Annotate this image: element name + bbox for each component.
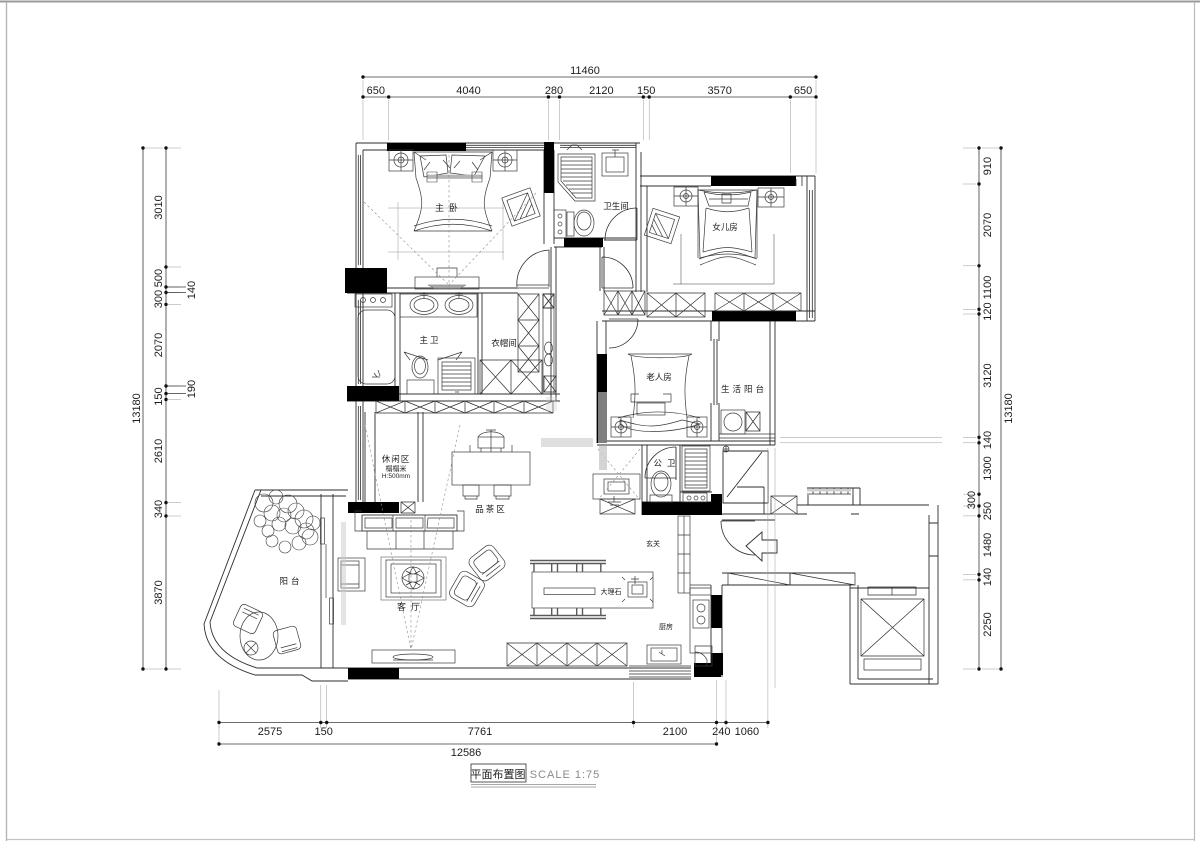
svg-text:140: 140: [982, 431, 994, 449]
svg-text:H:500mm: H:500mm: [382, 473, 410, 480]
svg-text:300: 300: [153, 290, 165, 308]
svg-text:240: 240: [712, 726, 730, 738]
svg-text:品茶区: 品茶区: [475, 504, 507, 514]
svg-text:玄关: 玄关: [646, 539, 660, 548]
svg-text:SCALE 1:75: SCALE 1:75: [530, 769, 601, 781]
svg-text:250: 250: [982, 502, 994, 520]
svg-text:大理石: 大理石: [601, 587, 622, 596]
svg-text:910: 910: [982, 157, 994, 175]
svg-text:阳台: 阳台: [279, 576, 302, 586]
svg-text:衣帽间: 衣帽间: [491, 338, 517, 348]
svg-text:3120: 3120: [982, 363, 994, 387]
svg-text:300: 300: [966, 491, 978, 509]
svg-text:11460: 11460: [570, 65, 600, 77]
svg-text:生活阳台: 生活阳台: [721, 384, 767, 394]
svg-text:厨房: 厨房: [659, 622, 673, 631]
svg-text:650: 650: [367, 85, 385, 97]
svg-text:12586: 12586: [451, 747, 482, 759]
svg-text:500: 500: [153, 269, 165, 287]
svg-text:280: 280: [545, 85, 563, 97]
svg-text:4040: 4040: [456, 85, 480, 97]
svg-text:1060: 1060: [735, 726, 759, 738]
svg-text:老人房: 老人房: [646, 372, 672, 382]
svg-text:休闲区: 休闲区: [382, 454, 411, 464]
svg-text:140: 140: [186, 281, 198, 299]
svg-text:2120: 2120: [589, 85, 613, 97]
svg-text:7761: 7761: [468, 726, 492, 738]
svg-text:女儿房: 女儿房: [712, 222, 738, 232]
svg-text:3570: 3570: [707, 85, 731, 97]
svg-text:1100: 1100: [982, 276, 994, 300]
svg-text:公卫: 公卫: [653, 458, 680, 468]
svg-text:卫生间: 卫生间: [603, 201, 629, 211]
svg-text:150: 150: [315, 726, 333, 738]
svg-text:13180: 13180: [1003, 393, 1015, 424]
svg-text:2575: 2575: [258, 726, 282, 738]
svg-text:3010: 3010: [153, 195, 165, 219]
svg-text:2070: 2070: [153, 333, 165, 357]
svg-text:主卧: 主卧: [435, 202, 463, 213]
svg-text:1300: 1300: [982, 456, 994, 480]
svg-text:190: 190: [186, 380, 198, 398]
svg-text:主卫: 主卫: [419, 335, 440, 345]
svg-text:120: 120: [982, 302, 994, 320]
svg-text:2250: 2250: [982, 612, 994, 636]
svg-text:150: 150: [153, 387, 165, 405]
svg-text:1480: 1480: [982, 533, 994, 557]
svg-text:平面布置图: 平面布置图: [471, 768, 526, 781]
svg-text:3870: 3870: [153, 580, 165, 604]
svg-text:150: 150: [637, 85, 655, 97]
svg-text:13180: 13180: [131, 393, 143, 424]
svg-text:140: 140: [982, 568, 994, 586]
svg-text:2100: 2100: [663, 726, 687, 738]
svg-text:340: 340: [153, 500, 165, 518]
svg-text:2070: 2070: [982, 213, 994, 237]
svg-text:客厅: 客厅: [397, 601, 425, 612]
svg-text:榻榻米: 榻榻米: [386, 464, 407, 473]
svg-text:650: 650: [794, 85, 812, 97]
svg-text:2610: 2610: [153, 439, 165, 463]
